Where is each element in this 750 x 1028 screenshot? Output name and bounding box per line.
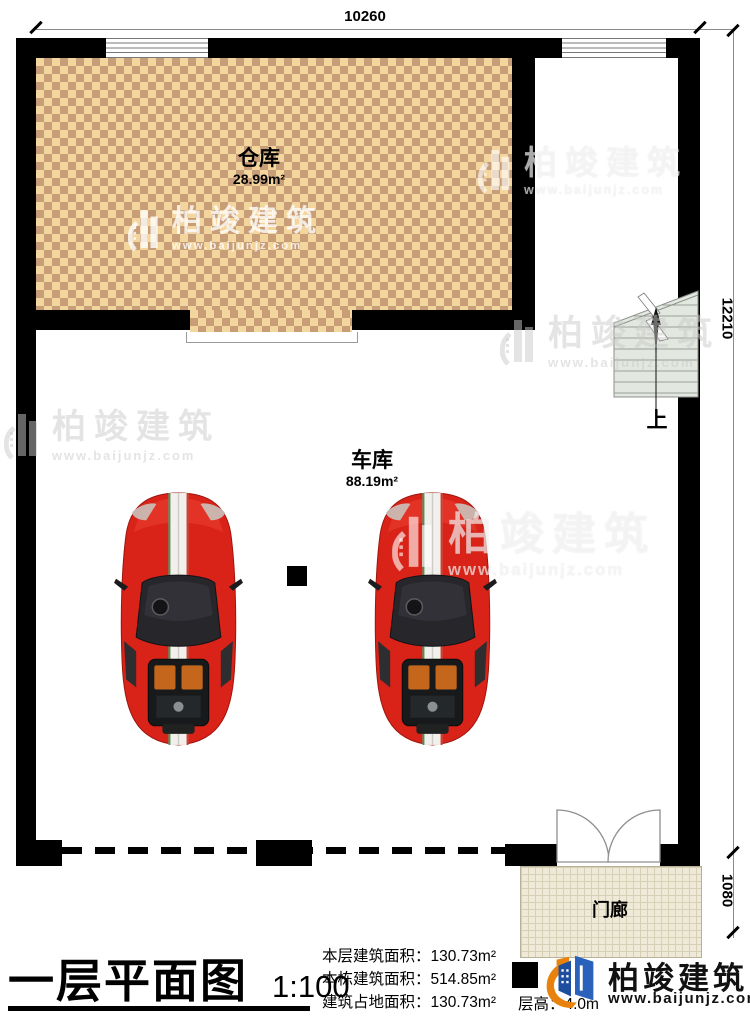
dimension-line-right bbox=[733, 29, 734, 938]
building-stats: 本层建筑面积：130.73m² 本栋建筑面积：514.85m² 建筑占地面积：1… bbox=[322, 945, 496, 1014]
sheet-title-text: 一层平面图 bbox=[8, 958, 248, 1004]
brand-url: www.baijunjz.com bbox=[608, 990, 750, 1007]
window-top-left bbox=[106, 38, 208, 58]
floor-plan-sheet: 10260 12210 1080 上 仓库 bbox=[0, 0, 750, 1028]
porch-label: 门廊 bbox=[535, 900, 685, 922]
garage-name: 车库 bbox=[297, 448, 447, 473]
dimension-top-value: 10260 bbox=[300, 8, 430, 25]
dimension-porch-value: 1080 bbox=[719, 864, 736, 918]
window-top-right bbox=[562, 38, 666, 58]
brand-logo-icon bbox=[543, 948, 605, 1010]
garage-label: 车库 88.19m² bbox=[297, 448, 447, 489]
pier-bottom-left bbox=[36, 840, 62, 866]
warehouse-step bbox=[186, 332, 358, 343]
wall-left bbox=[16, 38, 36, 866]
stat-total-area: 本栋建筑面积：514.85m² bbox=[322, 968, 496, 991]
warehouse-door-threshold bbox=[190, 310, 352, 332]
garage-area: 88.19m² bbox=[297, 473, 447, 489]
sheet-title: 一层平面图 1:100 bbox=[8, 956, 350, 1004]
sports-car-top-view bbox=[366, 490, 499, 748]
warehouse-label: 仓库 28.99m² bbox=[184, 146, 334, 187]
pier-bottom-middle bbox=[256, 840, 312, 866]
legend-column-marker bbox=[512, 962, 538, 988]
warehouse-wall-right bbox=[512, 58, 535, 310]
warehouse-name: 仓库 bbox=[184, 146, 334, 171]
dimension-right-value: 12210 bbox=[719, 289, 736, 349]
stairs-up-label: 上 bbox=[640, 404, 674, 434]
dimension-tick bbox=[29, 21, 42, 34]
dimension-tick bbox=[693, 21, 706, 34]
stat-footprint-area: 建筑占地面积：130.73m² bbox=[322, 991, 496, 1014]
sports-car-top-view bbox=[112, 490, 245, 748]
entrance-double-door bbox=[545, 786, 670, 866]
title-underline bbox=[8, 1006, 310, 1011]
warehouse-area: 28.99m² bbox=[184, 171, 334, 187]
column-symbol bbox=[287, 566, 307, 586]
warehouse-wall-bottom-right bbox=[352, 310, 535, 330]
porch-name: 门廊 bbox=[535, 900, 685, 922]
warehouse-wall-bottom-left bbox=[16, 310, 190, 330]
dimension-line-top bbox=[36, 29, 733, 30]
stat-floor-area: 本层建筑面积：130.73m² bbox=[322, 945, 496, 968]
watermark: 柏竣建筑www.baijunjz.com bbox=[4, 410, 220, 462]
wall-right bbox=[678, 38, 700, 866]
